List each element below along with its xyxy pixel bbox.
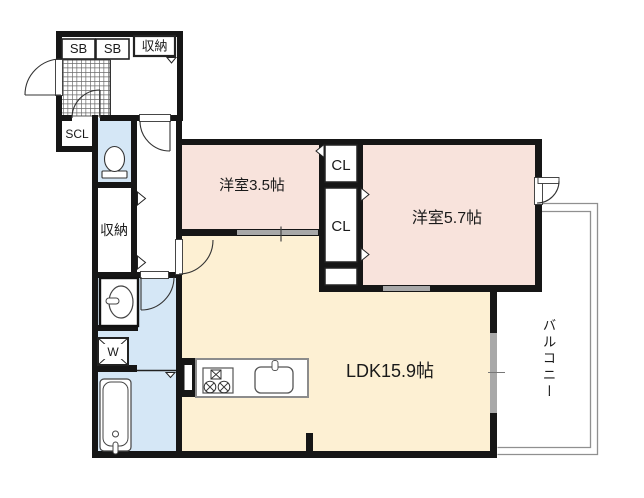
label-western-room-large: 洋室5.7帖 xyxy=(412,209,482,227)
label-ldk: LDK15.9帖 xyxy=(346,361,434,381)
label-closet-bottom: CL xyxy=(331,218,350,235)
kitchen-wall-stub-inner xyxy=(185,365,193,390)
floorplan-drawing: SB SB 収納 SCL 収納 W 洋室3.5帖 CL CL 洋室5.7帖 LD… xyxy=(0,0,644,498)
label-shoe-closet: SCL xyxy=(65,127,89,141)
entrance-door-gap xyxy=(56,60,63,96)
kitchen-counter xyxy=(196,359,308,397)
label-hall-storage: 収納 xyxy=(100,222,128,238)
balcony-door-leaf xyxy=(538,178,559,184)
stove xyxy=(203,368,233,393)
hall-door-gap xyxy=(140,115,171,122)
sliding-door-western-5-7 xyxy=(383,286,430,291)
label-closet-top: CL xyxy=(331,157,350,174)
pipe-space-box xyxy=(325,268,357,285)
washroom-door-gap xyxy=(141,272,169,279)
ldk-door-gap xyxy=(176,240,183,275)
label-entry-storage: 収納 xyxy=(141,39,167,54)
label-western-room-small: 洋室3.5帖 xyxy=(219,177,285,194)
floorplan-page: SB SB 収納 SCL 収納 W 洋室3.5帖 CL CL 洋室5.7帖 LD… xyxy=(0,0,644,498)
entrance-hatch xyxy=(61,60,110,116)
label-balcony: バルコニー xyxy=(541,318,556,401)
label-washer: W xyxy=(107,345,119,359)
sliding-door-western-3-5 xyxy=(237,230,318,235)
label-shoe-box-1: SB xyxy=(70,41,87,56)
label-shoe-box-2: SB xyxy=(104,41,121,56)
washbasin xyxy=(100,278,138,326)
bathtub xyxy=(100,379,131,454)
